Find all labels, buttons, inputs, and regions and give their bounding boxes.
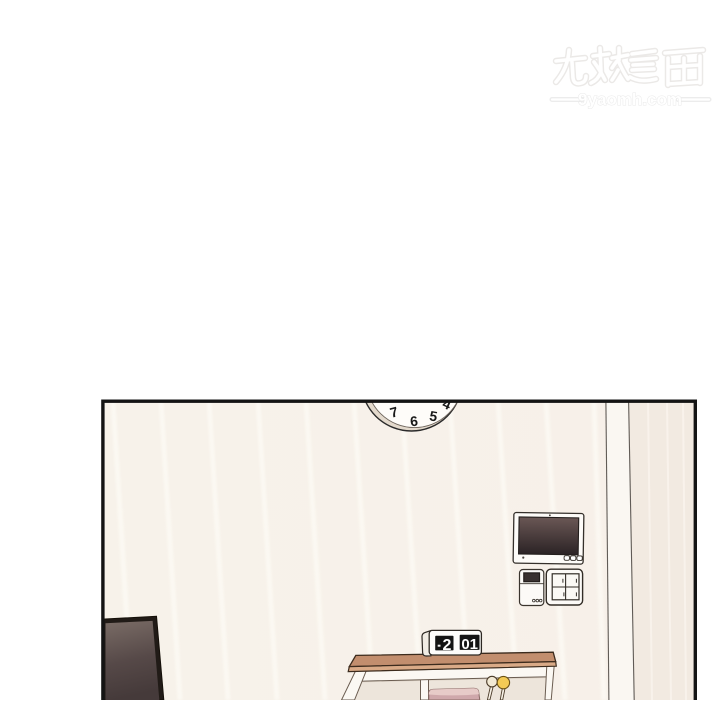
svg-text:2: 2	[443, 637, 452, 654]
svg-text:9yaomh.com: 9yaomh.com	[578, 90, 682, 109]
svg-text:01: 01	[461, 636, 478, 653]
